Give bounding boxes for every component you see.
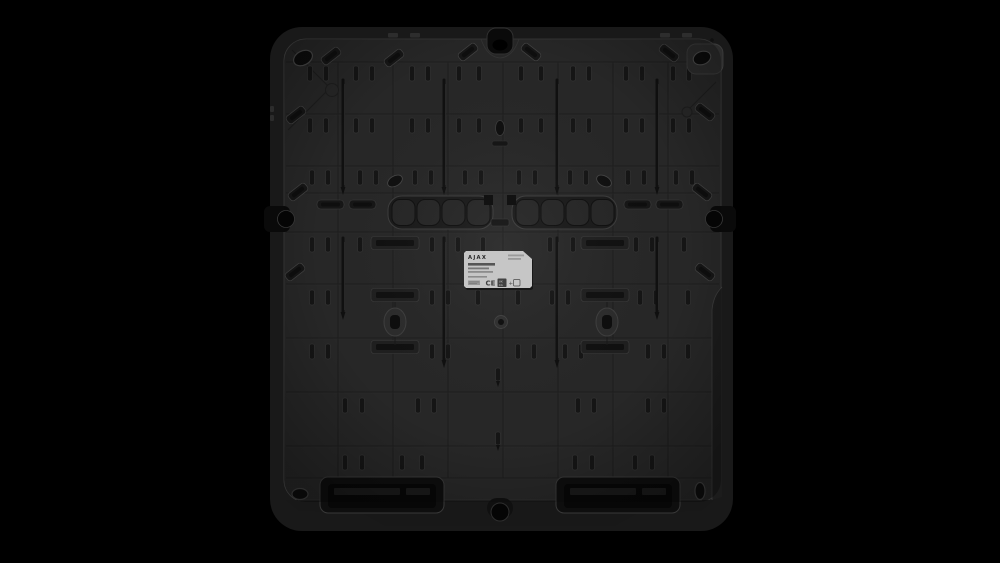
rim-notch [410,33,420,38]
case-back-render: AJAX CE UK CA + [0,0,1000,563]
ukca-mark: UK CA [498,279,507,288]
ce-mark: CE [486,280,496,288]
pin-hole-top-right [710,38,714,42]
label-fine-print-line [468,271,493,273]
label-fine-print-line [508,258,521,260]
screw-hole-bottom-center [491,503,509,521]
product-photo-scene: AJAX CE UK CA + [0,0,1000,563]
rim-notch [660,33,670,38]
product-label: AJAX CE UK CA + [464,251,533,290]
plus-mark: + [509,281,514,287]
ajax-logo-text: AJAX [468,255,487,261]
rim-notch [388,33,398,38]
label-fine-print-line [508,255,524,257]
label-title-line [468,263,495,266]
label-fine-print-line [468,276,487,278]
label-fine-print-line [469,282,479,283]
rim-notch-left [270,106,274,112]
label-fine-print-line [469,283,477,284]
label-fine-print-block [468,281,480,286]
rim-notch-left [270,115,274,121]
label-fine-print-line [468,268,489,270]
rim-notch [682,33,692,38]
